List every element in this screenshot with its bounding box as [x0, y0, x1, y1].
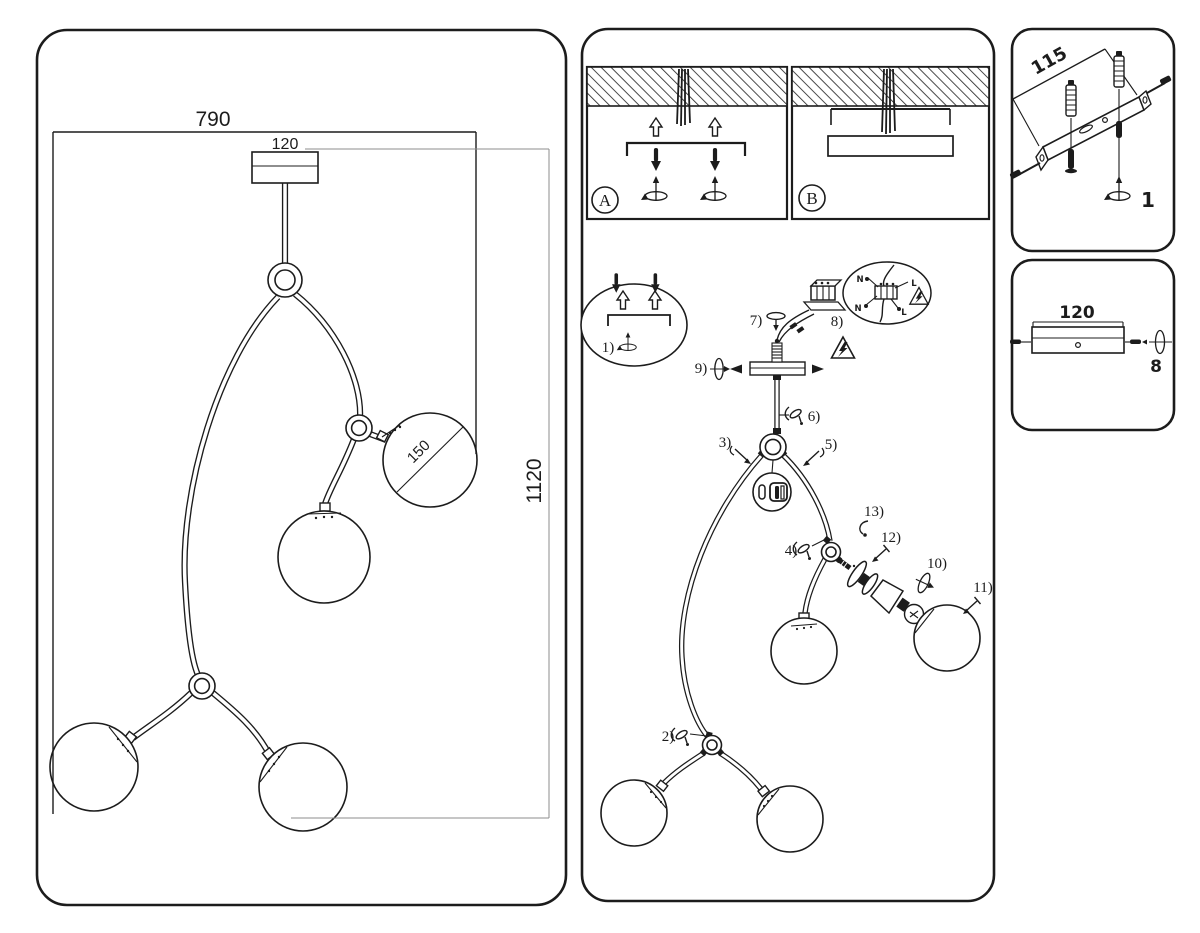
- dimension-drawing-panel: 790 120 1120 150: [33, 26, 571, 910]
- step-3-label: 3): [719, 435, 732, 451]
- assembly-instructions-panel: A B 1): [578, 25, 998, 905]
- connector-cutaway-detail: [753, 460, 791, 511]
- dim-canopy-width-label: 120: [272, 136, 299, 153]
- canopy: [1032, 327, 1124, 353]
- step-8-label: 8): [831, 314, 844, 330]
- screw-icon: [785, 407, 803, 425]
- set-screw-arrow-icon: [730, 365, 742, 374]
- canopy-detail-panel: 120 8: [1008, 256, 1178, 434]
- wall-anchor: [1114, 51, 1124, 87]
- glass-globe: [601, 780, 668, 846]
- set-screw-arrow-icon: [812, 365, 824, 374]
- option-b-label: B: [806, 189, 817, 208]
- ceiling-mount-panel-a: A: [587, 67, 787, 219]
- ring-joint: [268, 263, 302, 297]
- glass-globe: [771, 613, 837, 684]
- terminal-block: [804, 280, 845, 310]
- step-9-label: 9): [695, 361, 708, 377]
- step-12-label: 12): [881, 530, 901, 546]
- step-7-label: 7): [750, 313, 763, 329]
- instruction-sheet: 790 120 1120 150: [0, 0, 1200, 933]
- ring-joint: [703, 736, 722, 755]
- lamp-drawing: [50, 152, 477, 831]
- rotate-icon: [1149, 331, 1172, 354]
- option-a-label: A: [599, 191, 612, 210]
- canopy: [252, 152, 318, 183]
- rotate-icon: [911, 570, 938, 597]
- step-6-label: 6): [808, 409, 821, 425]
- side-screw: [1147, 75, 1172, 93]
- ceiling-hatch: [587, 67, 787, 106]
- canopy-width-label: 120: [1059, 303, 1095, 323]
- step-4-label: 4): [785, 543, 798, 559]
- electric-warning-icon: [832, 337, 855, 358]
- bracket-step-number: 1: [1141, 188, 1155, 212]
- step-5-label: 5): [825, 437, 838, 453]
- mounting-bracket-isometric: 115: [1009, 43, 1172, 212]
- canopy-assembly: [730, 280, 845, 375]
- wiring-detail-inset: N L N L: [843, 262, 931, 324]
- step-11-label: 11): [973, 580, 992, 596]
- rotate-icon: [1104, 176, 1130, 201]
- glass-globe: [914, 605, 980, 671]
- screw-icon: [872, 545, 890, 562]
- ring-joint: [822, 543, 841, 562]
- ring-joint: [189, 673, 215, 699]
- step-13-label: 13): [864, 504, 884, 520]
- canopy-step-number: 8: [1150, 357, 1162, 377]
- anchor-screw: [1116, 89, 1122, 183]
- socket-cup: [871, 580, 903, 613]
- glass-globe: [278, 511, 370, 603]
- canopy: [828, 136, 953, 156]
- wall-anchor: [1066, 80, 1076, 116]
- glass-globe: [50, 723, 138, 811]
- wire-l-top-label: L: [911, 279, 917, 289]
- ring-joint: [346, 415, 372, 441]
- screw-icon: [963, 597, 981, 614]
- side-screw: [1009, 163, 1040, 179]
- bracket-length-label: 115: [1028, 43, 1071, 80]
- bracket-step-inset: 1): [581, 273, 687, 366]
- canopy-detail-drawing: 120 8: [1010, 303, 1172, 377]
- screw-icon: [803, 448, 824, 466]
- terminal-block: [875, 286, 897, 299]
- hook-icon: [860, 521, 868, 534]
- screw-icon: [730, 446, 751, 464]
- glass-globe: [757, 786, 823, 852]
- bracket-detail-panel: 115: [1008, 25, 1178, 255]
- dim-height-label: 1120: [523, 458, 546, 503]
- wire-n-top-label: N: [856, 275, 863, 285]
- dim-width-label: 790: [195, 108, 230, 131]
- ceiling-mount-panel-b: B: [792, 67, 989, 219]
- bracket-bar: [1043, 97, 1144, 160]
- rotate-icon: [710, 359, 730, 380]
- set-screw: [1010, 340, 1031, 345]
- wire-n-bottom-label: N: [854, 304, 861, 314]
- socket-exploded-parts: [839, 559, 924, 623]
- ring-joint: [760, 434, 786, 460]
- step-1-label: 1): [602, 340, 615, 356]
- step-10-label: 10): [927, 556, 947, 572]
- wire-l-bottom-label: L: [901, 308, 907, 318]
- set-screw: [1125, 340, 1147, 345]
